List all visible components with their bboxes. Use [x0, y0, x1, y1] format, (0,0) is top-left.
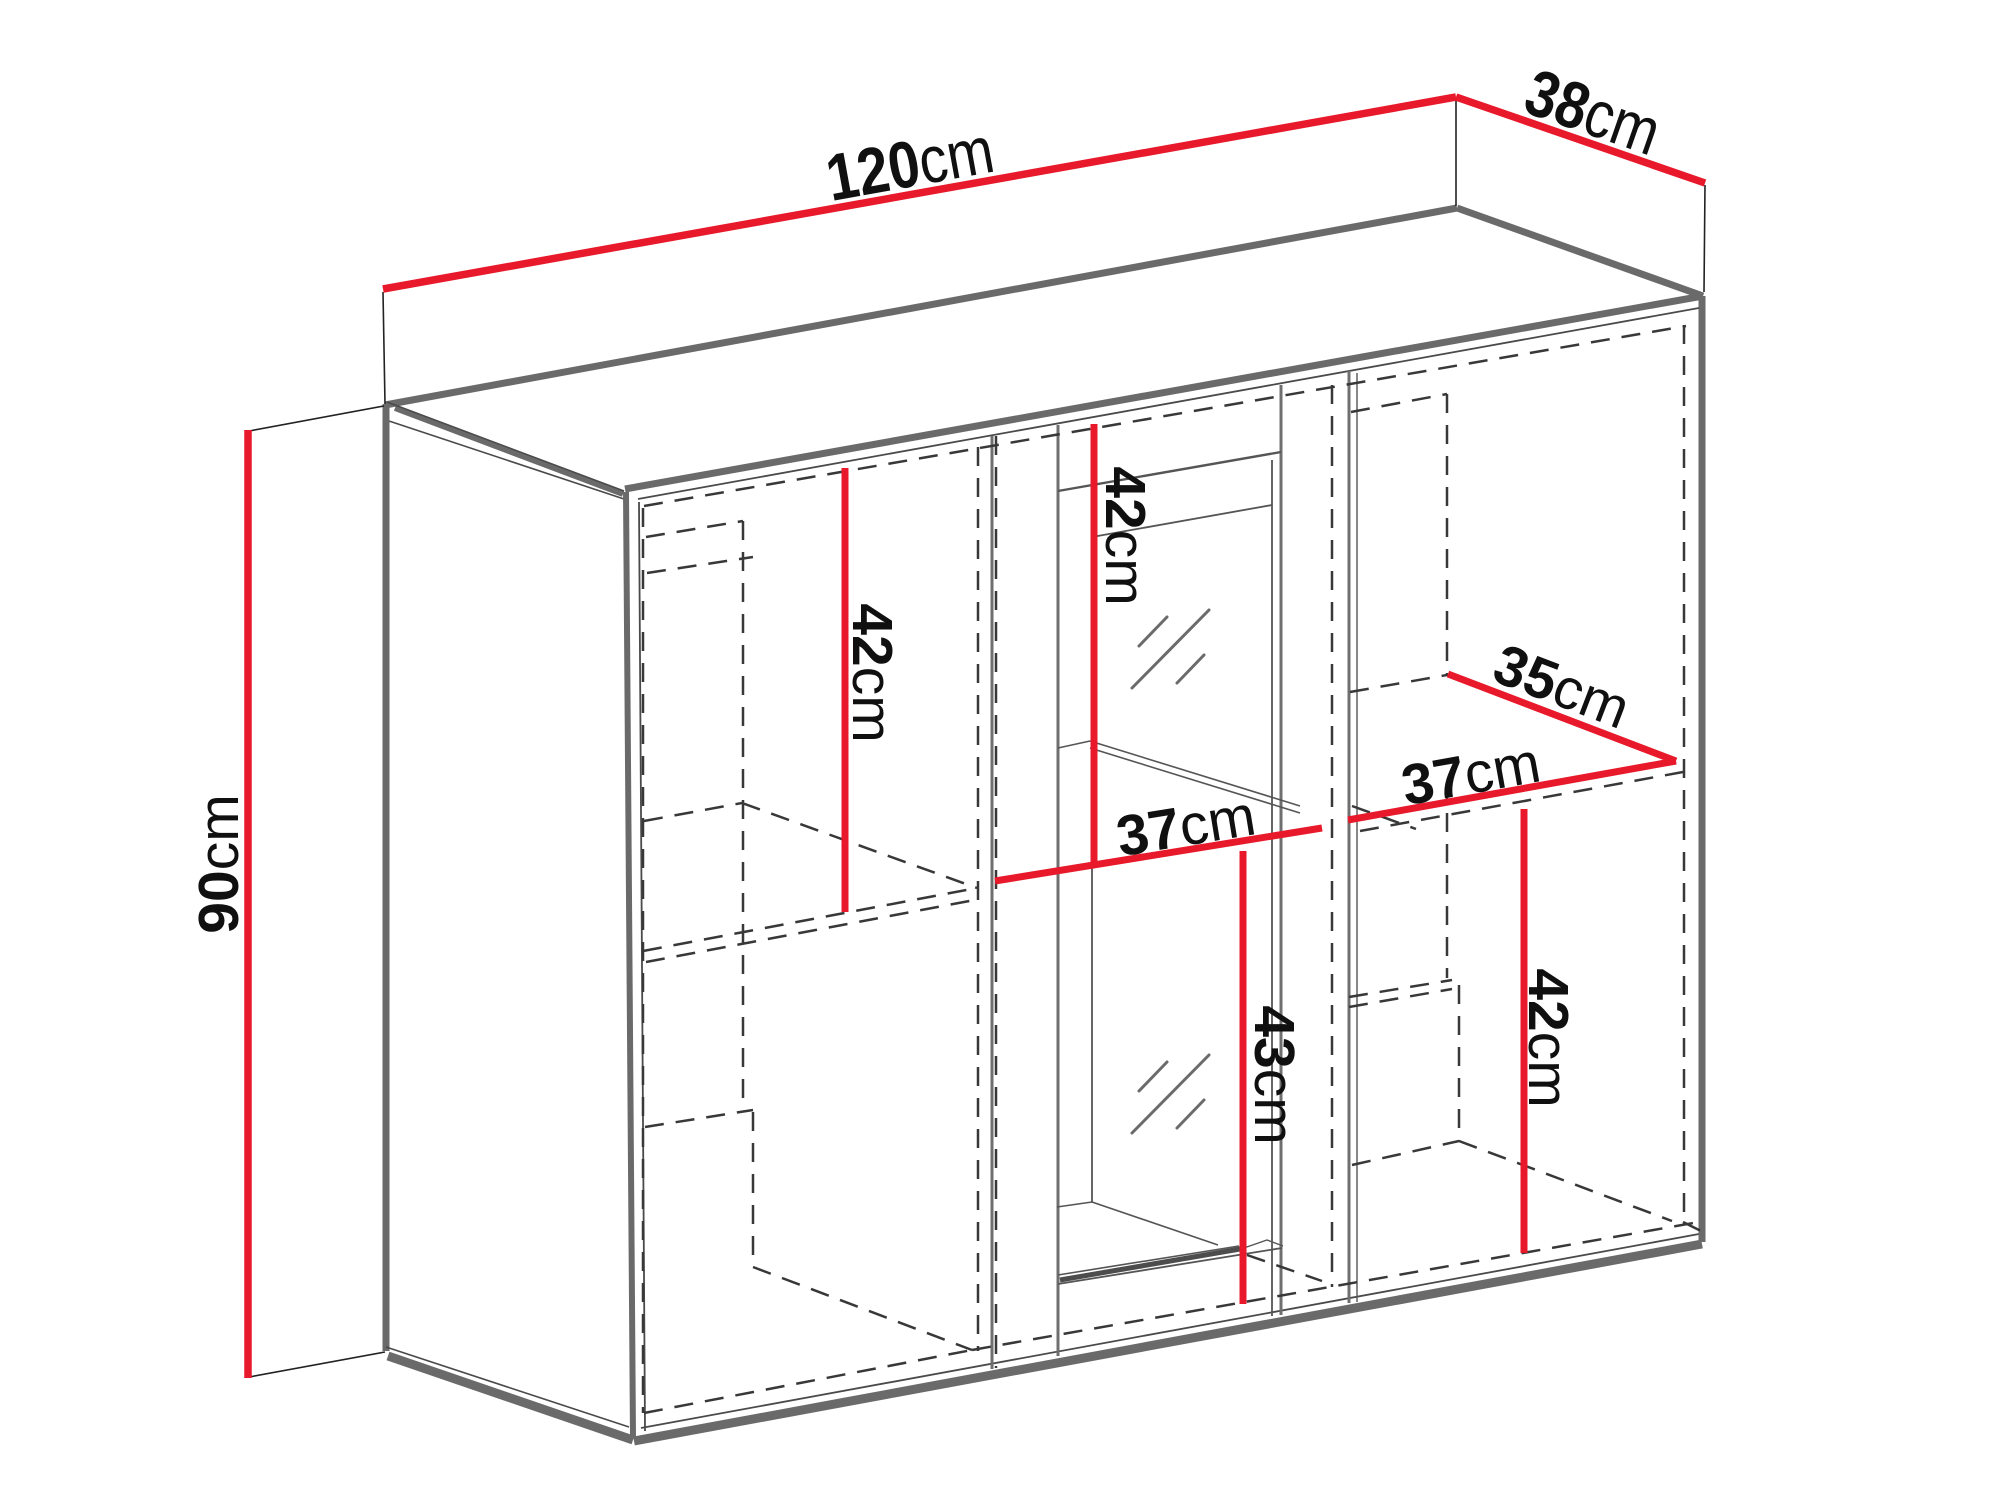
svg-text:90cm: 90cm [187, 794, 251, 933]
svg-text:42cm: 42cm [840, 603, 904, 742]
svg-text:42cm: 42cm [1093, 466, 1157, 605]
svg-text:42cm: 42cm [1516, 968, 1580, 1107]
svg-text:43cm: 43cm [1242, 1005, 1306, 1144]
